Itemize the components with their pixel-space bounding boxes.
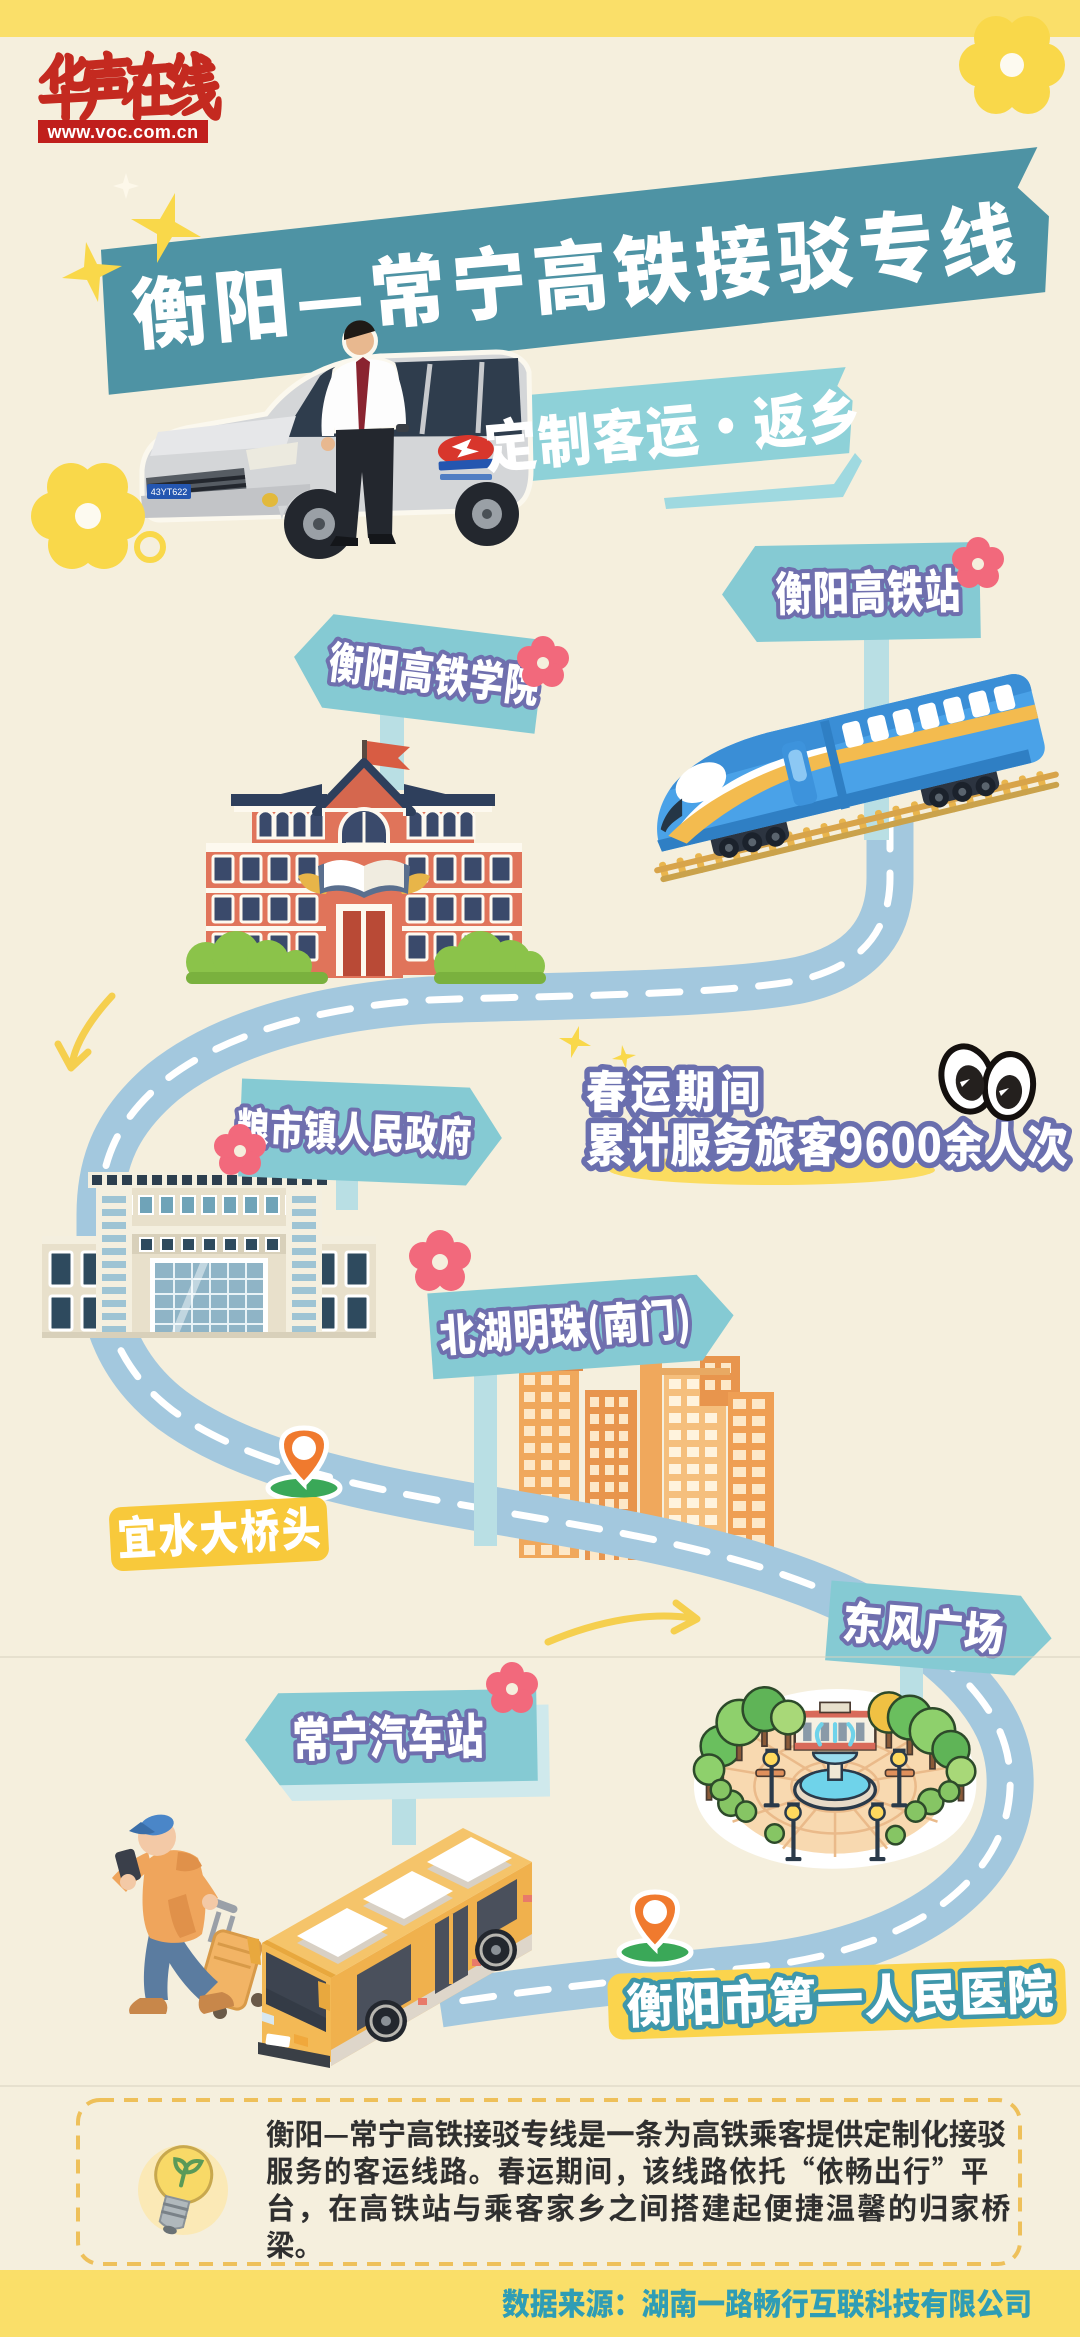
svg-text:43YT622: 43YT622 xyxy=(151,487,188,497)
svg-text:www.voc.com.cn: www.voc.com.cn xyxy=(47,122,199,142)
